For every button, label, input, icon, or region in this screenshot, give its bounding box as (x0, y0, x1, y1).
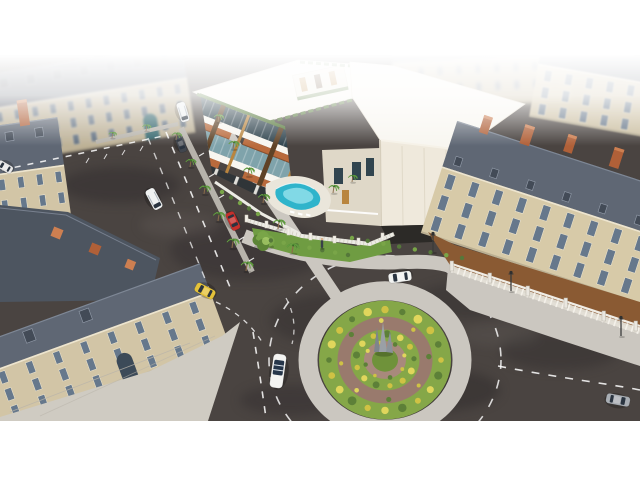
shrub (355, 365, 360, 370)
shrub (427, 386, 434, 393)
shrub (435, 341, 442, 348)
hedge-bush (220, 190, 224, 194)
shrub (407, 344, 413, 350)
hedge-bush (282, 241, 286, 245)
shrub (363, 362, 367, 366)
fog-overlay (0, 54, 640, 146)
shrub (365, 405, 371, 411)
window (39, 195, 46, 207)
window (36, 174, 43, 186)
render-canvas (0, 0, 640, 480)
shrub (328, 372, 335, 379)
hedge-bush (307, 246, 311, 250)
aerial-render-scene (0, 0, 640, 480)
letterbox-bottom (0, 421, 640, 480)
shrub (400, 367, 404, 371)
shrub (388, 375, 393, 380)
hedge-bush (346, 253, 350, 257)
hedge-bush (460, 256, 464, 260)
window (55, 171, 62, 183)
hedge-bush (229, 195, 233, 199)
shrub (438, 357, 444, 363)
shrub (417, 384, 421, 388)
shrub (373, 374, 377, 378)
shrub (373, 381, 380, 388)
shrub (402, 353, 406, 357)
shrub (387, 383, 392, 388)
shrub (348, 396, 357, 405)
shrub (336, 386, 344, 394)
hedge-bush (444, 253, 448, 257)
hedge-bush (350, 236, 354, 240)
hedge-bush (256, 212, 260, 216)
shrub (328, 340, 336, 348)
shrub (411, 356, 416, 361)
shrub (363, 308, 371, 316)
shrub (349, 332, 354, 337)
window (58, 192, 65, 204)
hedge-bush (269, 238, 273, 242)
shrub (399, 309, 405, 315)
shrub (361, 375, 367, 381)
shrub (415, 398, 421, 404)
shrub (339, 361, 343, 365)
shrub (413, 315, 422, 324)
shrub (386, 397, 391, 402)
shrub (359, 340, 365, 346)
shrub (379, 318, 384, 323)
hedge-bush (256, 236, 260, 240)
window (20, 197, 27, 209)
shrub (408, 368, 415, 375)
shrub (426, 326, 434, 334)
shrub (366, 349, 370, 353)
hedge-bush (238, 201, 242, 205)
hedge-bush (333, 250, 337, 254)
hedge-bush (397, 244, 401, 248)
shrub (393, 342, 398, 347)
shrub (371, 333, 377, 339)
window (17, 176, 24, 188)
shrub (411, 328, 415, 332)
shrub (353, 351, 360, 358)
shrub (326, 357, 332, 363)
shrub (426, 354, 431, 359)
shrub (400, 378, 406, 384)
shrub (381, 407, 388, 414)
hedge-bush (247, 206, 251, 210)
hedge-bush (366, 239, 370, 243)
hedge-bush (381, 242, 385, 246)
shrub (336, 327, 343, 334)
shrub (398, 404, 406, 412)
shrub (434, 372, 442, 380)
shrub (354, 388, 359, 393)
shrub (381, 306, 388, 313)
hedge-bush (413, 247, 417, 251)
shrub (397, 334, 404, 341)
shrub (349, 316, 355, 322)
letterbox-top (0, 0, 640, 55)
